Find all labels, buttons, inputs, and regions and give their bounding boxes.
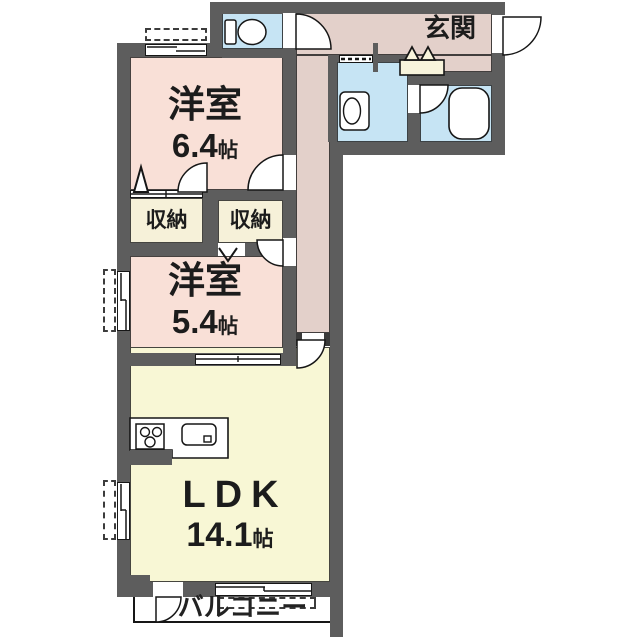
wall [283,48,296,155]
wall [492,53,505,155]
wall [408,72,492,85]
eaves-dashed-left-lower [103,480,116,540]
wall [283,266,296,353]
wall [117,243,218,256]
wall [218,190,296,200]
balcony-label: バルコニー [150,592,335,622]
bedroom1-label: 洋室 [129,84,281,126]
bedroom1-door-gap [283,155,296,190]
wall [492,2,505,15]
wall [330,142,343,637]
wall [330,142,505,155]
bedroom2-size-unit: 帖 [218,315,238,338]
bedroom2-ldk-sliding-door [195,354,281,365]
closet-left-label: 収納 [130,209,203,233]
entrance-step [373,43,378,72]
bedroom1-size-unit: 帖 [218,139,238,162]
closet-left-sliding-door [130,190,203,198]
entrance-door-gap [492,15,505,53]
bedroom1-size: 6.4帖 [129,128,281,164]
bedroom2-size: 5.4帖 [129,304,281,340]
bedroom2-label: 洋室 [129,260,281,302]
ldk-label: LDK [140,474,330,516]
washroom-floor [337,62,408,142]
wall [210,2,222,57]
bedroom2-size-value: 5.4 [172,303,218,340]
wall [328,55,337,142]
bedroom1-top-window [145,44,207,56]
entrance-label: 玄関 [410,13,490,43]
bathroom-floor [420,85,492,142]
closet-right-label: 収納 [218,209,283,233]
wall [203,190,218,250]
corridor-floor [296,55,330,333]
bathroom-door-gap [408,85,420,113]
wall [245,243,283,256]
ldk-size-value: 14.1 [186,516,252,554]
door-arc-entrance [503,17,541,55]
floor-plan: 玄関 洋室 6.4帖 収納 収納 洋室 5.4帖 LDK 14.1帖 バルコニー [0,0,640,640]
washroom-window [339,55,373,63]
ldk-size: 14.1帖 [135,516,325,554]
eaves-dashed-top [145,28,207,41]
toilet-floor [222,13,283,49]
bedroom1-size-value: 6.4 [172,127,218,164]
door-jamb [296,333,302,346]
ldk-size-unit: 帖 [253,528,274,551]
wall [408,113,420,142]
bedroom2-door-gap [283,238,296,266]
door-jamb [324,333,330,346]
ldk-left-window [117,482,130,540]
eaves-dashed-left-upper [103,269,116,332]
toilet-door-gap [283,13,296,48]
